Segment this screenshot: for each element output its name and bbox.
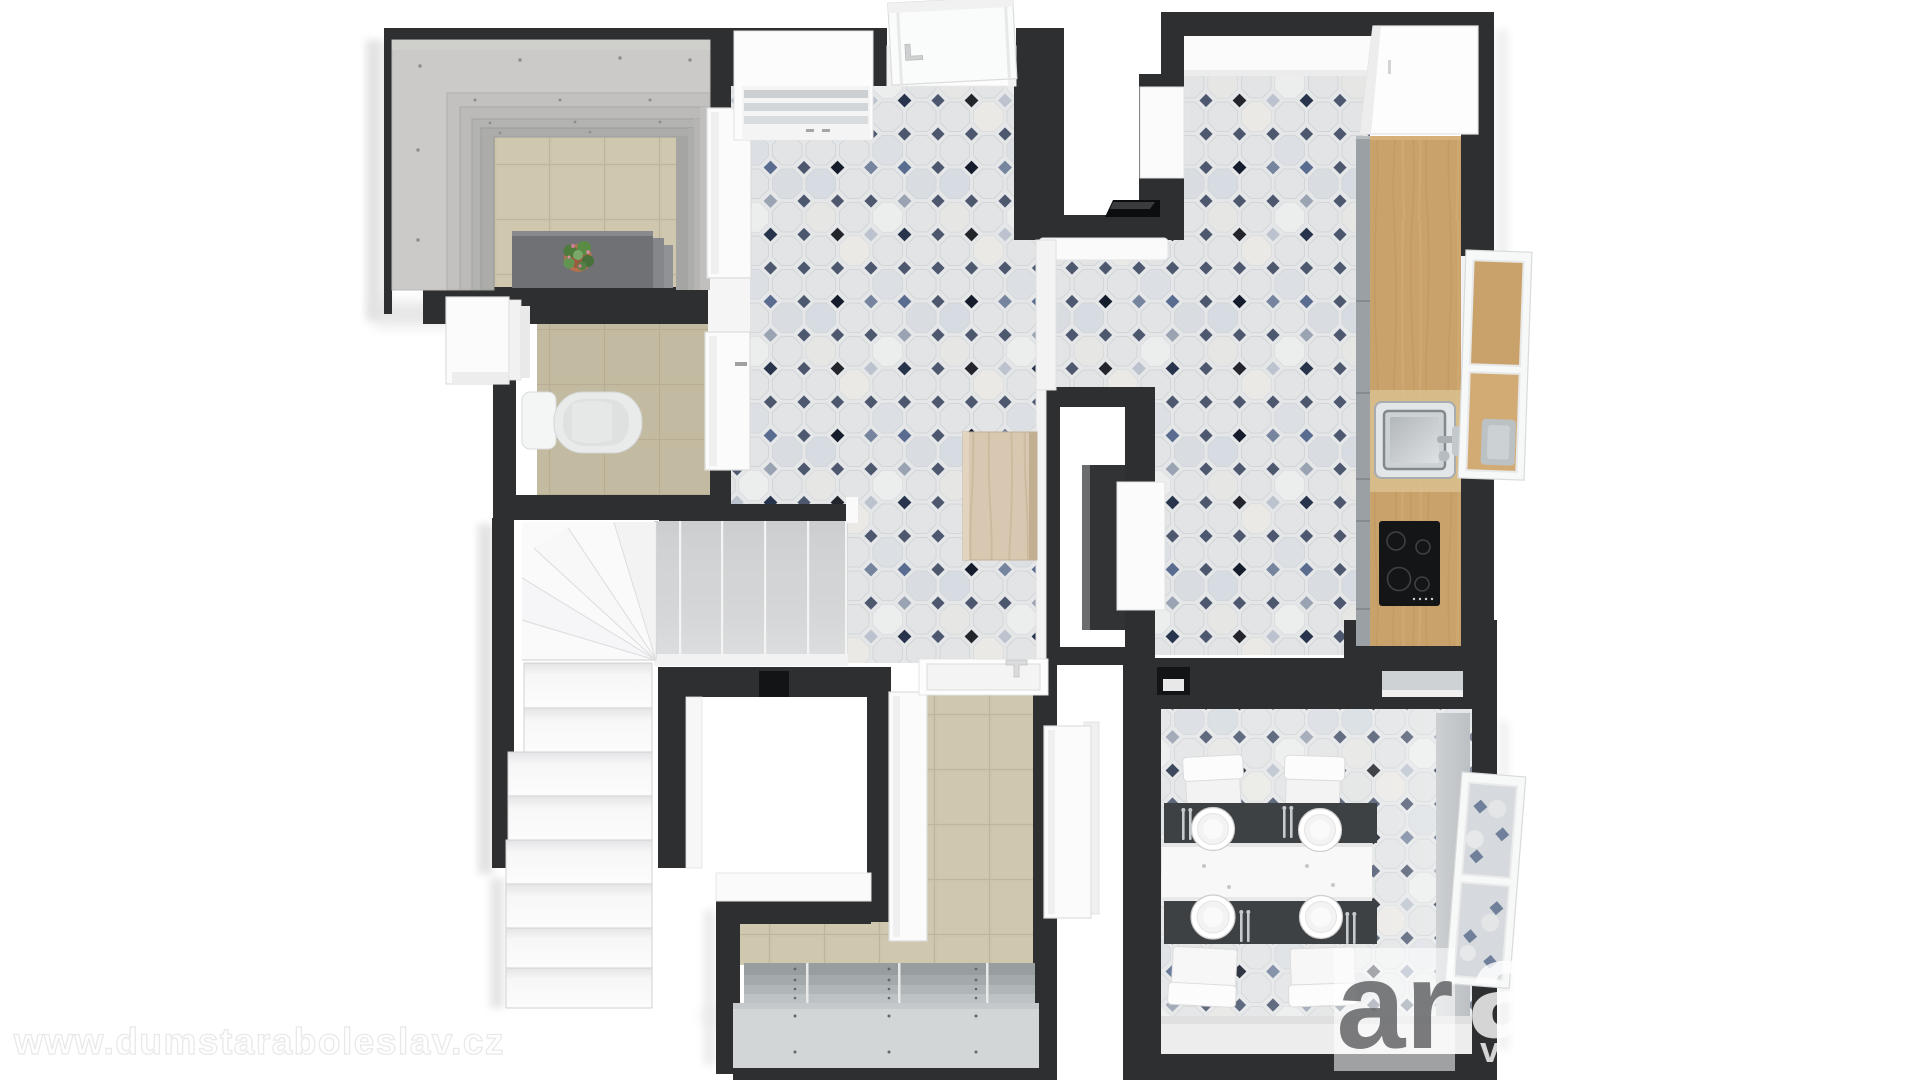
svg-text:v: v [1480, 1029, 1500, 1070]
svg-text:www.dumstaraboleslav.cz: www.dumstaraboleslav.cz [13, 1021, 505, 1062]
svg-text:ar: ar [1336, 937, 1453, 1075]
